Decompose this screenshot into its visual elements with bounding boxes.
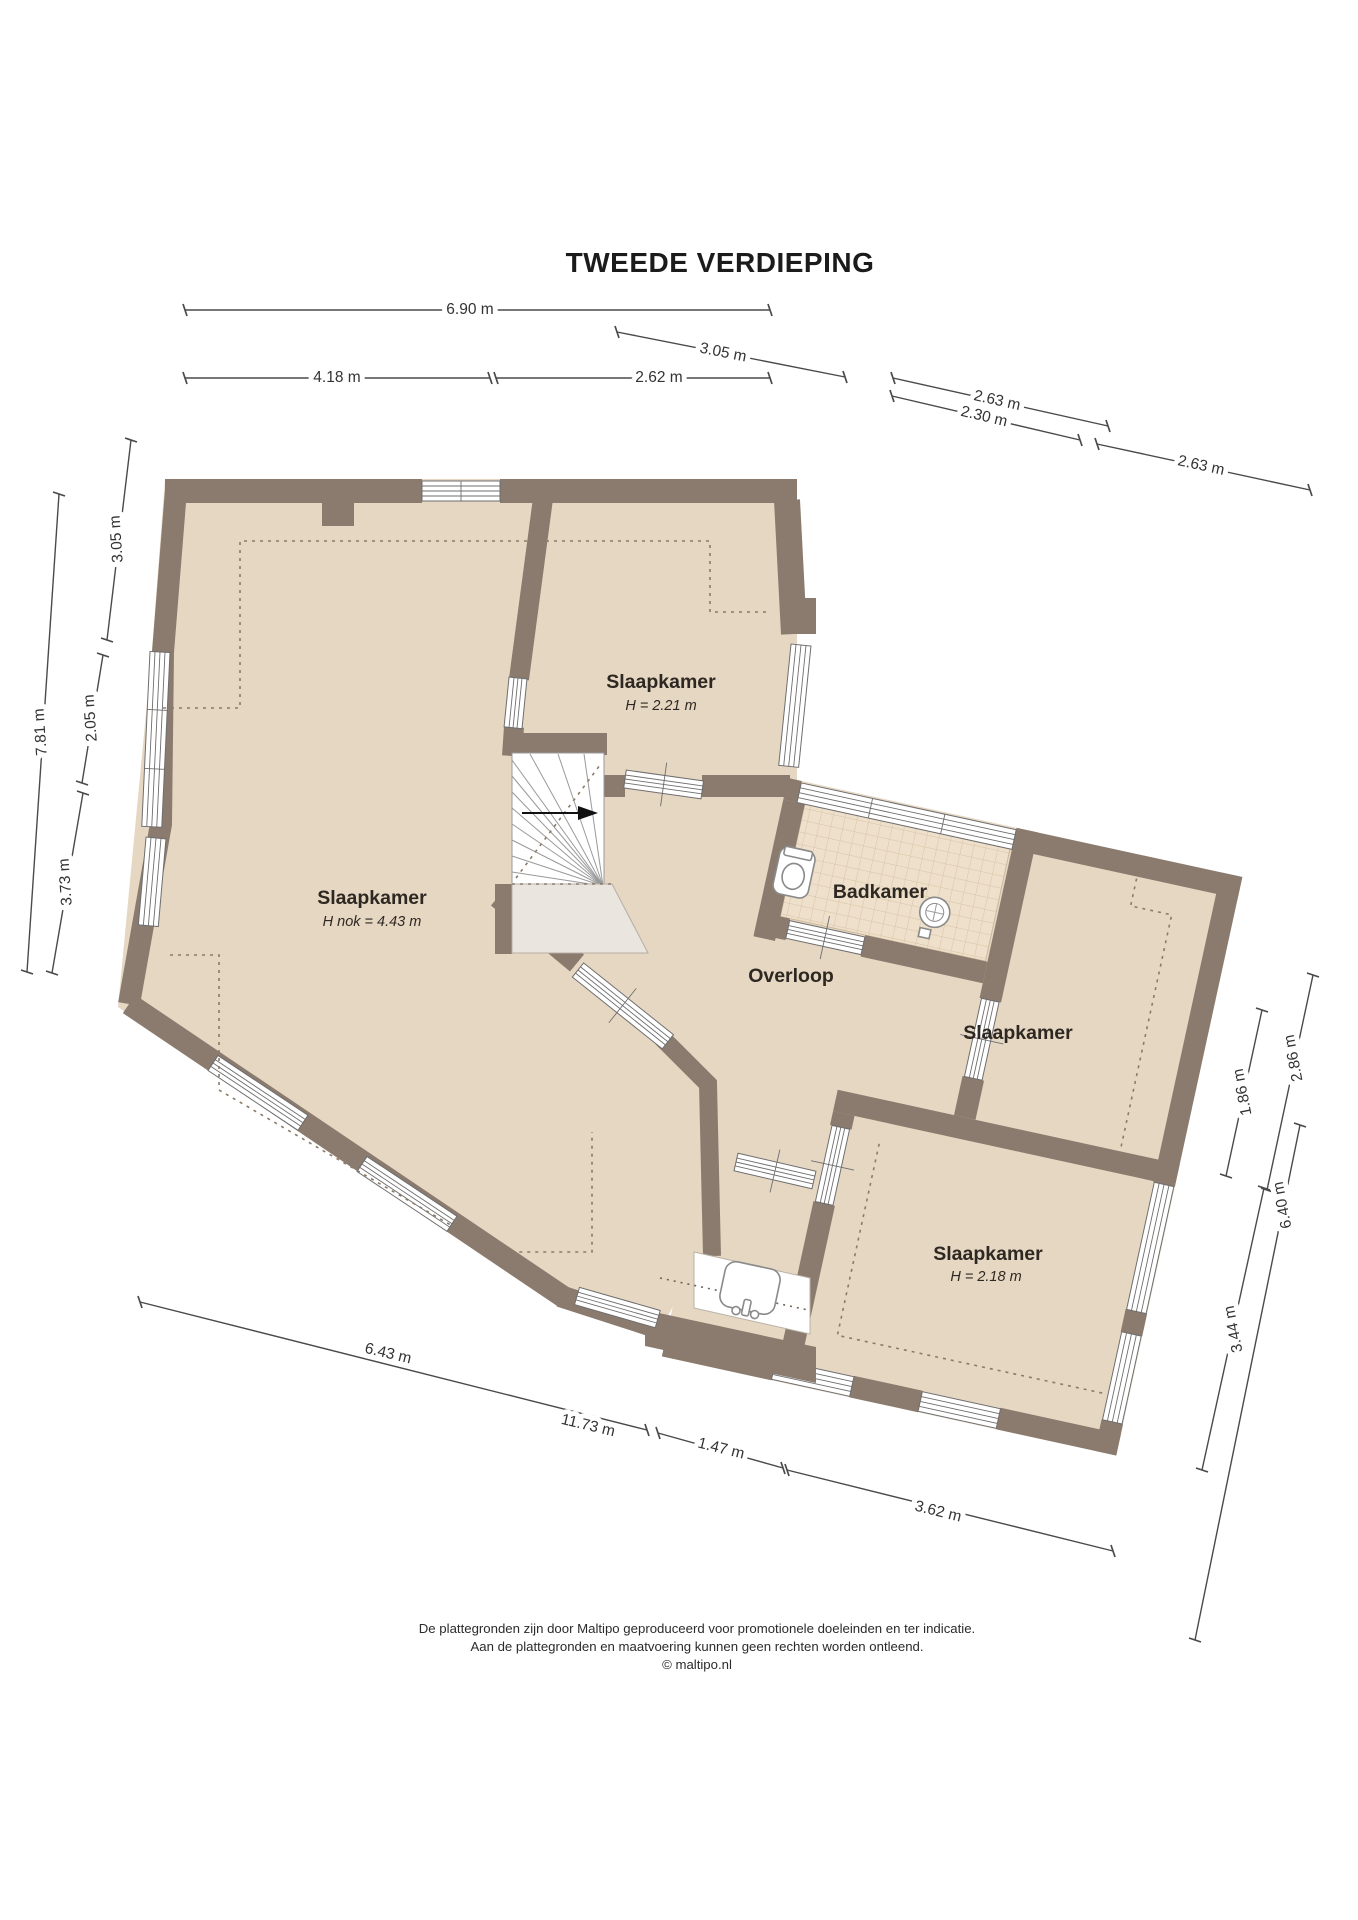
bedroom-top-height: H = 2.21 m xyxy=(625,698,696,714)
window xyxy=(422,481,500,501)
dim-label: 3.62 m xyxy=(913,1498,963,1526)
dim-label: 6.40 m xyxy=(1270,1180,1296,1230)
dim-label: 3.44 m xyxy=(1221,1304,1247,1354)
bedroom-main-height: H nok = 4.43 m xyxy=(323,914,422,930)
dim-label: 2.86 m xyxy=(1281,1033,1307,1083)
dim-label: 6.90 m xyxy=(446,301,493,318)
dim-label: 7.81 m xyxy=(30,708,50,756)
dim-label: 3.73 m xyxy=(55,858,75,906)
dim-label: 1.86 m xyxy=(1230,1067,1256,1117)
footer-line-1: De plattegronden zijn door Maltipo gepro… xyxy=(419,1621,975,1636)
floorplan-svg: TWEEDE VERDIEPING xyxy=(0,0,1358,1920)
bathroom-label: Badkamer xyxy=(833,881,928,903)
bedroom-bottom-height: H = 2.18 m xyxy=(950,1269,1021,1285)
bedroom-right-label: Slaapkamer xyxy=(963,1022,1073,1044)
dim-label: 3.05 m xyxy=(698,340,748,366)
dim-label: 2.05 m xyxy=(80,694,100,742)
footer-line-2: Aan de plattegronden en maatvoering kunn… xyxy=(470,1639,923,1654)
footer-line-3: © maltipo.nl xyxy=(662,1657,732,1672)
dim-label: 1.47 m xyxy=(696,1435,746,1463)
dim-label: 6.43 m xyxy=(363,1340,413,1368)
dim-label: 2.62 m xyxy=(635,369,682,386)
chimney xyxy=(322,503,354,526)
footer: De plattegronden zijn door Maltipo gepro… xyxy=(419,1621,975,1672)
dim-label: 2.63 m xyxy=(1176,452,1226,479)
landing-label: Overloop xyxy=(748,965,834,987)
floorplan xyxy=(118,479,1242,1455)
bedroom-bottom-label: Slaapkamer xyxy=(933,1243,1043,1265)
dim-label: 4.18 m xyxy=(313,369,360,386)
page-title: TWEEDE VERDIEPING xyxy=(566,247,875,278)
bedroom-main-label: Slaapkamer xyxy=(317,887,427,909)
dim-label: 3.05 m xyxy=(106,515,126,563)
bedroom-top-label: Slaapkamer xyxy=(606,671,716,693)
